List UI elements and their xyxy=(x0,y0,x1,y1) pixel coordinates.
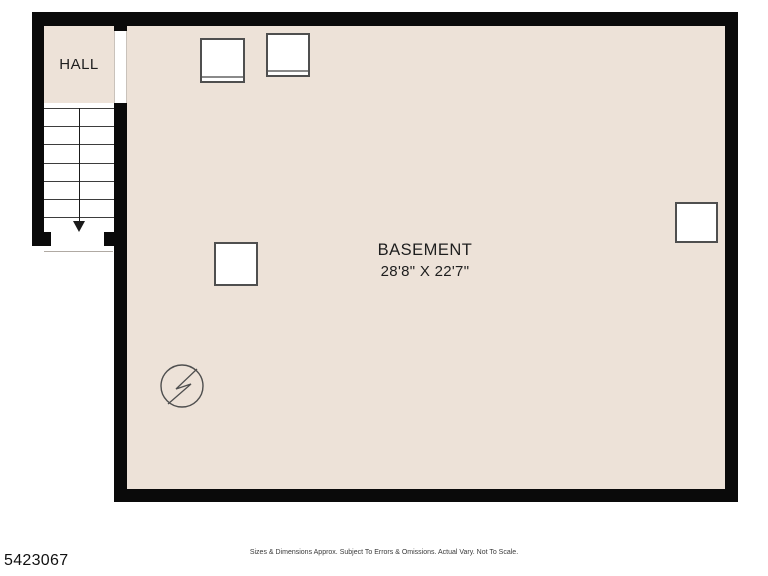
listing-id: 5423067 xyxy=(4,552,68,570)
wall-top xyxy=(32,12,738,26)
basement-room-name: BASEMENT xyxy=(325,241,525,260)
stair-landing xyxy=(44,232,113,252)
basement-label-block: BASEMENT 28'8" X 22'7" xyxy=(325,241,525,280)
appliance-door-line xyxy=(202,76,243,78)
appliance-door-line xyxy=(268,70,308,72)
appliance-square-1 xyxy=(200,38,245,83)
floorplan-canvas: HALL BASEMENT 28'8" X 22'7" Sizes & Dime… xyxy=(0,0,768,576)
post-square-right xyxy=(675,202,718,243)
disclaimer-text: Sizes & Dimensions Approx. Subject To Er… xyxy=(0,549,768,556)
wall-right xyxy=(725,12,738,502)
appliance-square-2 xyxy=(266,33,310,77)
wall-stair-stub-right xyxy=(104,232,127,246)
wall-stair-stub-left xyxy=(32,232,51,246)
down-arrow-icon xyxy=(73,221,85,232)
post-square-center xyxy=(214,242,258,286)
wall-bottom xyxy=(114,489,738,502)
basement-room-dimensions: 28'8" X 22'7" xyxy=(325,263,525,280)
circle-bolt-icon xyxy=(158,362,206,410)
hall-doorway-opening xyxy=(114,31,127,104)
wall-stair-west xyxy=(32,26,44,246)
wall-west xyxy=(114,103,127,489)
staircase xyxy=(44,103,114,232)
hall-label: HALL xyxy=(44,56,114,73)
stair-direction-line xyxy=(79,108,80,221)
wall-west-stub xyxy=(114,26,127,31)
